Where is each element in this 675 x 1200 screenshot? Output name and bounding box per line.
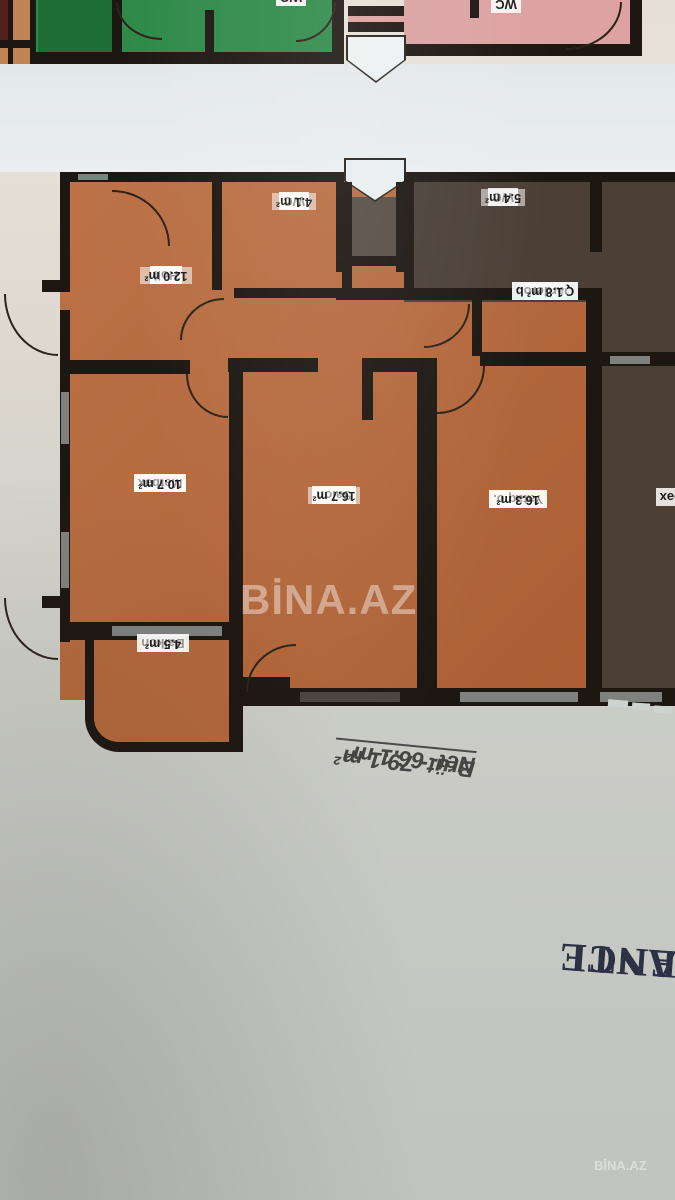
building-name-line2: ENCE [556,934,675,987]
wall-segment [417,358,437,690]
wall-segment [36,52,344,64]
room-name: Mətbəx [656,488,675,506]
room-area: 10.7 m² [134,475,185,492]
window-band [610,356,650,364]
wall-segment [348,22,404,32]
wall-segment [362,372,373,420]
wall-segment [404,172,414,300]
room-area: 1.8 m² [523,283,567,300]
wall-segment [630,0,642,56]
duct-box [344,197,404,262]
building-name: ANTI ENCE [515,976,675,987]
bina-az-watermark: BİNA.AZ [240,576,417,624]
window-band [78,174,108,180]
room-name: WC [276,0,306,6]
door-arc [4,598,58,660]
wall-segment [344,256,404,266]
wall-segment [229,622,243,752]
room-name: WC [491,0,521,13]
entry-door-arc [4,294,58,356]
room-area: 12.0 m² [140,267,191,284]
room-area: 16.3 m² [492,491,543,508]
wall-segment [470,0,479,18]
green-subroom [38,0,118,52]
window-band [61,532,69,588]
apartment-dark-right [592,172,675,706]
wall-segment [590,182,602,252]
wall-segment [472,300,482,356]
wall-segment [404,44,642,56]
wall-segment [42,280,70,292]
room-area: 4.5 m² [141,635,185,652]
wall-segment [0,40,36,48]
area-totals: Brüt- 79.1 m² Net- 66.1 m² [247,761,474,783]
wall-segment [404,172,675,182]
balcony-dash [608,699,628,707]
corridor-band [0,64,675,172]
balcony-body [85,640,243,752]
room-area: 4.1 m² [272,193,316,210]
window-band [460,692,578,702]
wall-segment [480,352,592,366]
bina-az-corner-watermark: BİNA.AZ [594,1158,647,1173]
balcony-dash [632,702,650,710]
floor-plan-photo: WC 4.1 m² Holl 12.0 m² Qarderob 1.8 m² M… [0,0,675,1200]
window-band-dark [300,692,400,702]
room-area: 16.7 m² [308,487,359,504]
wall-segment [205,10,214,52]
window-band [61,392,69,444]
wall-segment [348,6,404,16]
wall-segment [212,182,222,290]
wall-segment [60,172,70,280]
balcony-dash [654,705,672,713]
wall-segment [60,360,190,374]
room-area: 5.4 m² [481,189,525,206]
wall-segment [8,0,13,64]
